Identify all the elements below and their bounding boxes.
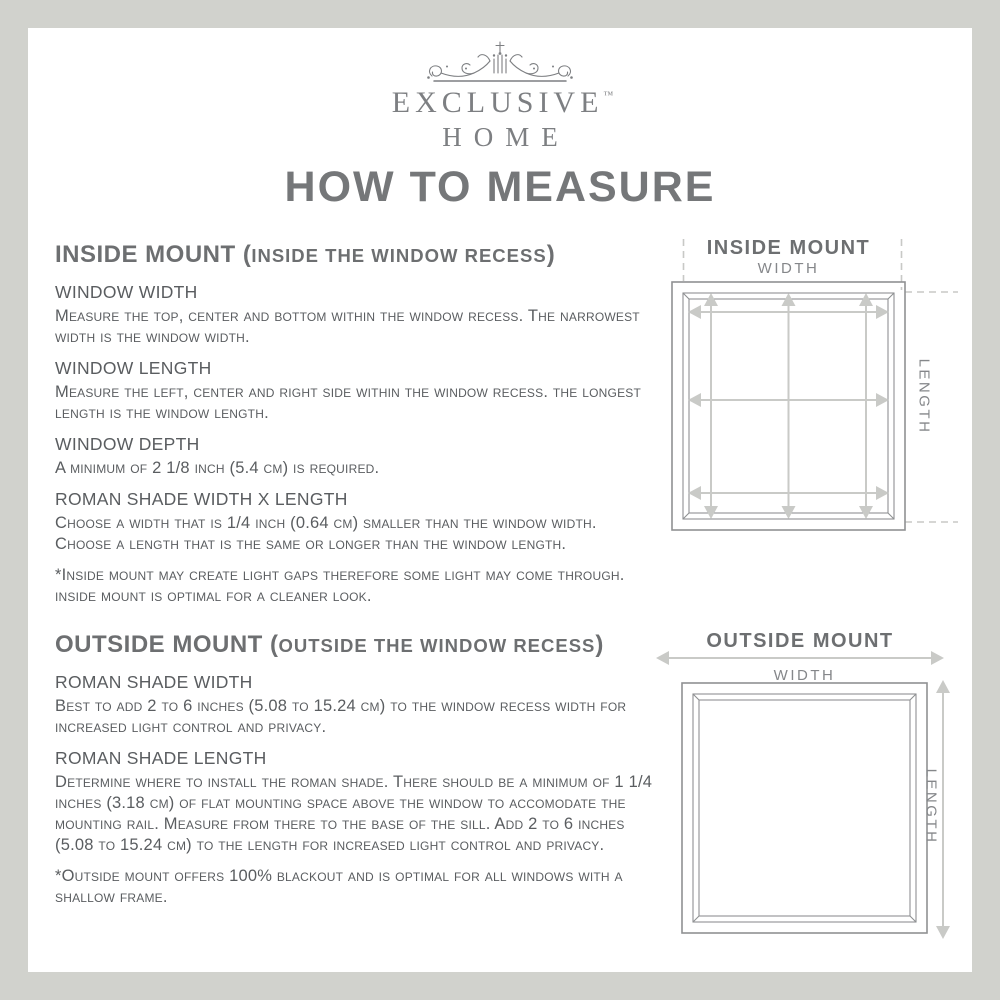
outside-mount-note: *Outside mount offers 100% blackout and … [55, 866, 655, 908]
inside-mount-width-label: WIDTH [672, 260, 905, 277]
brand-name-text: EXCLUSIVE [392, 86, 604, 119]
outside-mount-heading-main: OUTSIDE MOUNT ( [55, 631, 279, 658]
brand-name: EXCLUSIVE™ [0, 86, 1000, 120]
inside-mount-heading: INSIDE MOUNT (INSIDE THE WINDOW RECESS) [55, 241, 655, 270]
inside-mount-diagram: INSIDE MOUNT WIDTH LENGTH [655, 235, 967, 565]
inside-mount-heading-main: INSIDE MOUNT ( [55, 241, 251, 268]
instructions-column: INSIDE MOUNT (INSIDE THE WINDOW RECESS) … [55, 241, 655, 908]
item-label: ROMAN SHADE WIDTH X LENGTH [55, 489, 655, 510]
item-label: ROMAN SHADE WIDTH [55, 672, 655, 693]
outside-mount-heading-close: ) [595, 631, 604, 658]
outside-mount-length-label: LENGTH [923, 767, 940, 847]
window-frame [682, 683, 927, 933]
outside-mount-heading: OUTSIDE MOUNT (OUTSIDE THE WINDOW RECESS… [55, 631, 655, 660]
outside-mount-width-label: WIDTH [682, 667, 927, 684]
instruction-item-roman-shade-wxl: ROMAN SHADE WIDTH X LENGTH Choose a widt… [55, 489, 655, 555]
width-measure-arrow [656, 651, 944, 665]
brand-name-home: HOME [0, 122, 1000, 153]
inside-mount-heading-paren: INSIDE THE WINDOW RECESS [251, 245, 546, 266]
instruction-item-window-width: WINDOW WIDTH Measure the top, center and… [55, 282, 655, 348]
item-body: Measure the left, center and right side … [55, 382, 655, 424]
inside-mount-length-label: LENGTH [916, 357, 933, 437]
item-label: WINDOW LENGTH [55, 358, 655, 379]
trademark-symbol: ™ [603, 90, 613, 101]
outside-mount-diagram: OUTSIDE MOUNT WIDTH LENGTH [655, 630, 967, 970]
instruction-item-window-depth: WINDOW DEPTH A minimum of 2 1/8 inch (5.… [55, 434, 655, 479]
item-label: WINDOW DEPTH [55, 434, 655, 455]
instruction-item-window-length: WINDOW LENGTH Measure the left, center a… [55, 358, 655, 424]
item-body: Choose a width that is 1/4 inch (0.64 cm… [55, 513, 655, 555]
item-body: Best to add 2 to 6 inches (5.08 to 15.24… [55, 696, 655, 738]
item-label: WINDOW WIDTH [55, 282, 655, 303]
item-body: Measure the top, center and bottom withi… [55, 306, 655, 348]
item-body: A minimum of 2 1/8 inch (5.4 cm) is requ… [55, 458, 655, 479]
outside-mount-heading-paren: OUTSIDE THE WINDOW RECESS [279, 635, 596, 656]
page-title: HOW TO MEASURE [0, 163, 1000, 212]
item-body: Determine where to install the roman sha… [55, 772, 655, 856]
instruction-item-roman-shade-length: ROMAN SHADE LENGTH Determine where to in… [55, 748, 655, 856]
page-background: EXCLUSIVE™ HOME HOW TO MEASURE INSIDE MO… [0, 0, 1000, 1000]
inside-mount-note: *Inside mount may create light gaps ther… [55, 565, 655, 607]
instruction-item-roman-shade-width: ROMAN SHADE WIDTH Best to add 2 to 6 inc… [55, 672, 655, 738]
inside-mount-heading-close: ) [547, 241, 556, 268]
item-label: ROMAN SHADE LENGTH [55, 748, 655, 769]
vertical-measure-arrows [704, 293, 873, 519]
brand-logo: EXCLUSIVE™ HOME [0, 40, 1000, 153]
inside-mount-diagram-title: INSIDE MOUNT [672, 237, 905, 260]
crest-ornament-icon [420, 40, 580, 84]
outside-mount-diagram-title: OUTSIDE MOUNT [655, 630, 945, 653]
